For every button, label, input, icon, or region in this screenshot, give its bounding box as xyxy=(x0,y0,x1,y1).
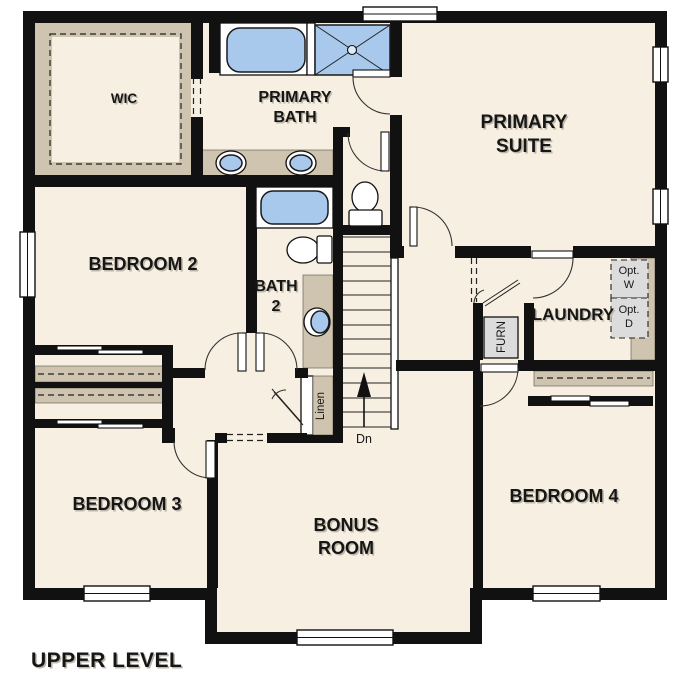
bedroom4-door-leaf xyxy=(481,364,518,372)
wall-wic-bath-south xyxy=(23,175,343,187)
wall-bath-suite-upper xyxy=(390,23,402,77)
wall-hall-west xyxy=(173,368,205,378)
label-bonus-line2: ROOM xyxy=(318,538,374,558)
label-bath2-line1: BATH xyxy=(254,278,297,295)
wall-bedroom4-left xyxy=(473,371,483,588)
label-opt-dryer-line1: Opt. xyxy=(619,304,640,316)
primary-bathtub xyxy=(227,28,305,72)
wall-bedroom3-jog xyxy=(162,428,175,443)
bedroom4-closet-bypass-door-1 xyxy=(551,396,590,401)
wall-linen-bottom xyxy=(307,435,333,443)
bedroom2-closet-bypass-door-1 xyxy=(57,346,102,350)
wc-door-leaf xyxy=(381,132,389,171)
label-bath2-line2: 2 xyxy=(272,298,281,315)
label-primary-suite-line1: PRIMARY xyxy=(481,112,568,133)
wc-toilet-tank xyxy=(349,210,382,226)
bedroom2-door-leaf xyxy=(238,333,246,371)
bath2-bathtub xyxy=(261,191,328,224)
bath2-toilet-tank xyxy=(317,236,332,263)
floor-plan-drawing: WIC PRIMARY BATH PRIMARY SUITE BEDROOM 2… xyxy=(0,0,687,687)
shower-drain xyxy=(348,46,357,55)
bath2-toilet-bowl xyxy=(287,237,319,263)
label-linen: Linen xyxy=(315,392,327,420)
stair-railing xyxy=(391,258,398,429)
label-bedroom3: BEDROOM 3 xyxy=(72,494,181,514)
wall-closet-divider xyxy=(23,382,173,388)
bedroom3-door-leaf xyxy=(206,441,215,478)
wall-wic-right-lower xyxy=(191,117,203,187)
label-laundry: LAUNDRY xyxy=(532,305,615,324)
wall-bonus-top-west xyxy=(267,433,307,443)
exterior-wall-right xyxy=(655,11,667,600)
label-furnace: FURN xyxy=(496,321,508,353)
primary-bath-door-leaf xyxy=(353,70,390,77)
wall-bath-suite-lower xyxy=(390,115,402,258)
tub-shower-divider xyxy=(307,23,315,75)
label-opt-dryer-line2: D xyxy=(625,318,633,330)
wall-tub-niche-stub xyxy=(209,23,220,73)
linen-floor-strip xyxy=(301,376,313,435)
label-bonus-line1: BONUS xyxy=(313,515,378,535)
wall-stair-left xyxy=(333,127,343,443)
label-wic: WIC xyxy=(111,91,137,106)
wall-laundry-bottom xyxy=(518,360,655,371)
floor-plan-page: WIC PRIMARY BATH PRIMARY SUITE BEDROOM 2… xyxy=(0,0,687,687)
label-primary-bath-line2: BATH xyxy=(273,109,316,126)
laundry-door-leaf xyxy=(532,251,573,258)
bedroom3-closet-bypass-door-1 xyxy=(57,420,102,424)
exterior-wall-left xyxy=(23,11,35,600)
label-opt-washer-line1: Opt. xyxy=(619,265,640,277)
label-bedroom2: BEDROOM 2 xyxy=(88,254,197,274)
label-primary-bath-line1: PRIMARY xyxy=(258,89,332,106)
wall-wic-right-upper xyxy=(191,23,203,79)
primary-suite-door-leaf xyxy=(410,207,417,246)
label-stairs-down: Dn xyxy=(356,432,372,446)
bath2-door-leaf xyxy=(256,333,264,371)
primary-sink-1 xyxy=(220,155,242,171)
label-primary-suite-line2: SUITE xyxy=(496,136,552,157)
label-opt-washer-line2: W xyxy=(624,279,635,291)
exterior-wall-top xyxy=(23,11,667,23)
wall-suite-hall-b xyxy=(455,246,531,258)
wall-suite-hall-c xyxy=(573,246,655,258)
bedroom3-closet-bypass-door-2 xyxy=(98,424,143,428)
label-upper-level: UPPER LEVEL xyxy=(31,649,182,672)
wall-closet-right xyxy=(162,345,173,428)
wall-furnace-left xyxy=(473,303,483,360)
bedroom4-closet-bypass-door-2 xyxy=(590,401,629,406)
primary-sink-2 xyxy=(290,155,312,171)
bedroom2-closet-bypass-door-2 xyxy=(98,350,143,354)
wall-hall-bonus-west xyxy=(396,360,480,371)
label-bedroom4: BEDROOM 4 xyxy=(509,486,618,506)
bath2-sink xyxy=(311,311,329,333)
wall-suite-hall-a xyxy=(396,246,404,258)
wc-toilet-bowl xyxy=(352,182,378,212)
